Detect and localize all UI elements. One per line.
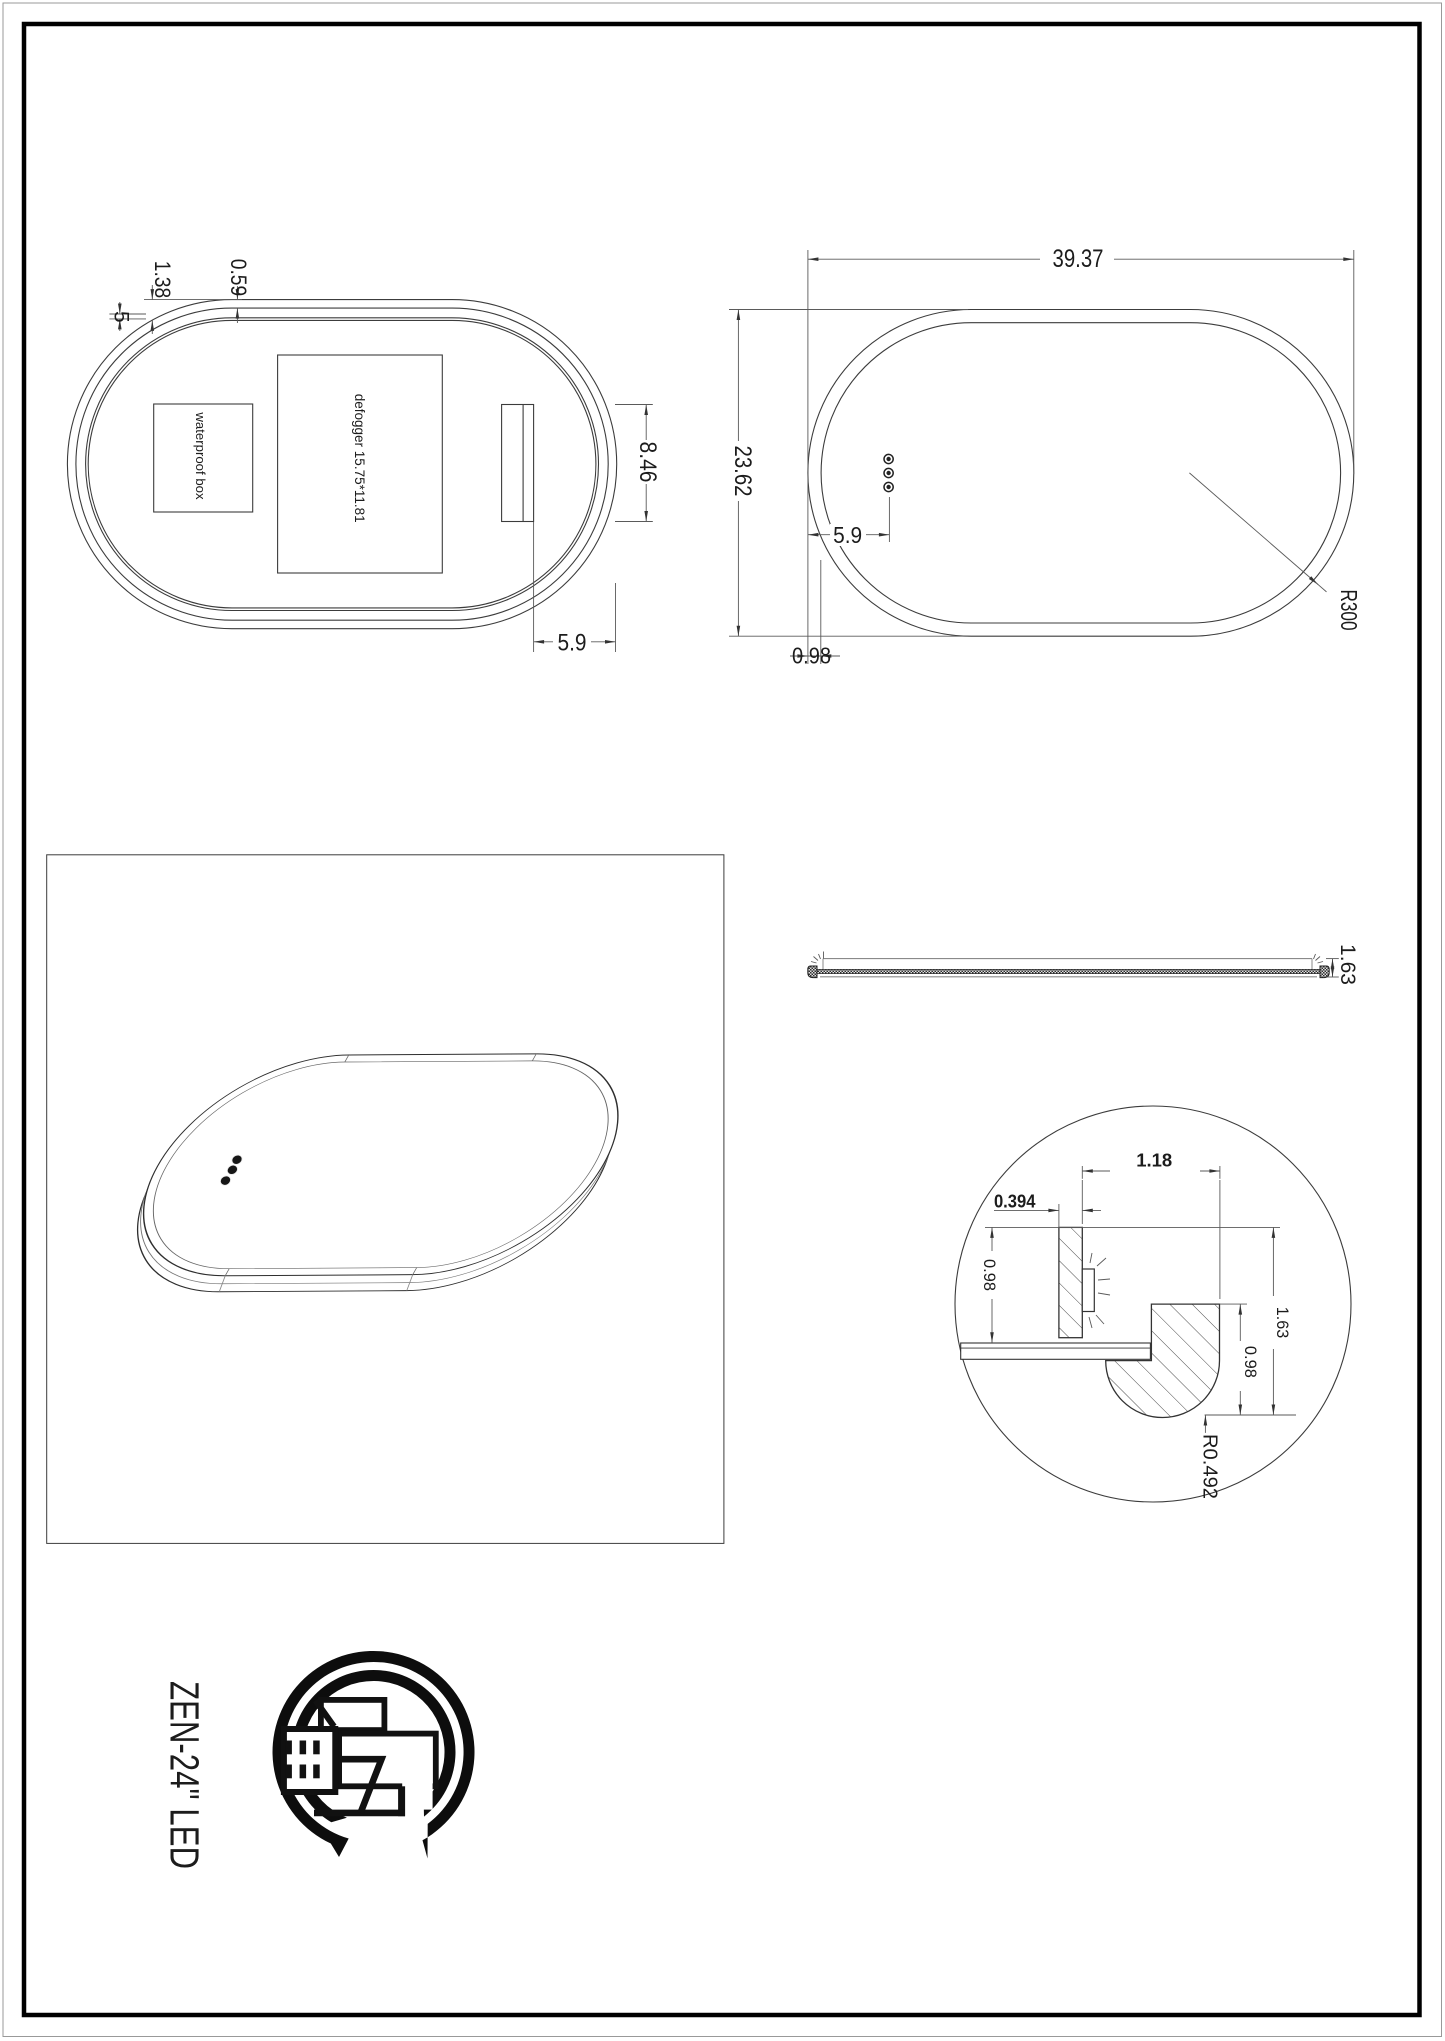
svg-text:0.98: 0.98: [792, 642, 831, 668]
svg-text:R300: R300: [1336, 590, 1362, 631]
svg-text:39.37: 39.37: [1053, 245, 1104, 273]
svg-text:0.98: 0.98: [1241, 1346, 1260, 1378]
svg-text:8.46: 8.46: [634, 442, 661, 483]
svg-text:1.63: 1.63: [1273, 1307, 1292, 1339]
svg-text:23.62: 23.62: [729, 446, 756, 497]
svg-text:R0.492: R0.492: [1198, 1434, 1220, 1499]
svg-text:5: 5: [109, 311, 132, 323]
svg-text:1.38: 1.38: [150, 261, 175, 299]
svg-text:0.98: 0.98: [980, 1259, 999, 1291]
svg-text:0.394: 0.394: [994, 1190, 1036, 1211]
svg-text:5.9: 5.9: [558, 629, 587, 656]
svg-text:defogger 15.75*11.81: defogger 15.75*11.81: [352, 394, 367, 523]
svg-text:1.18: 1.18: [1136, 1150, 1172, 1171]
svg-text:1.63: 1.63: [1336, 944, 1359, 985]
svg-text:waterproof box: waterproof box: [193, 411, 208, 500]
svg-text:5.9: 5.9: [833, 522, 862, 548]
svg-text:ZEN-24" LED: ZEN-24" LED: [161, 1681, 207, 1869]
svg-text:0.59: 0.59: [226, 259, 251, 297]
